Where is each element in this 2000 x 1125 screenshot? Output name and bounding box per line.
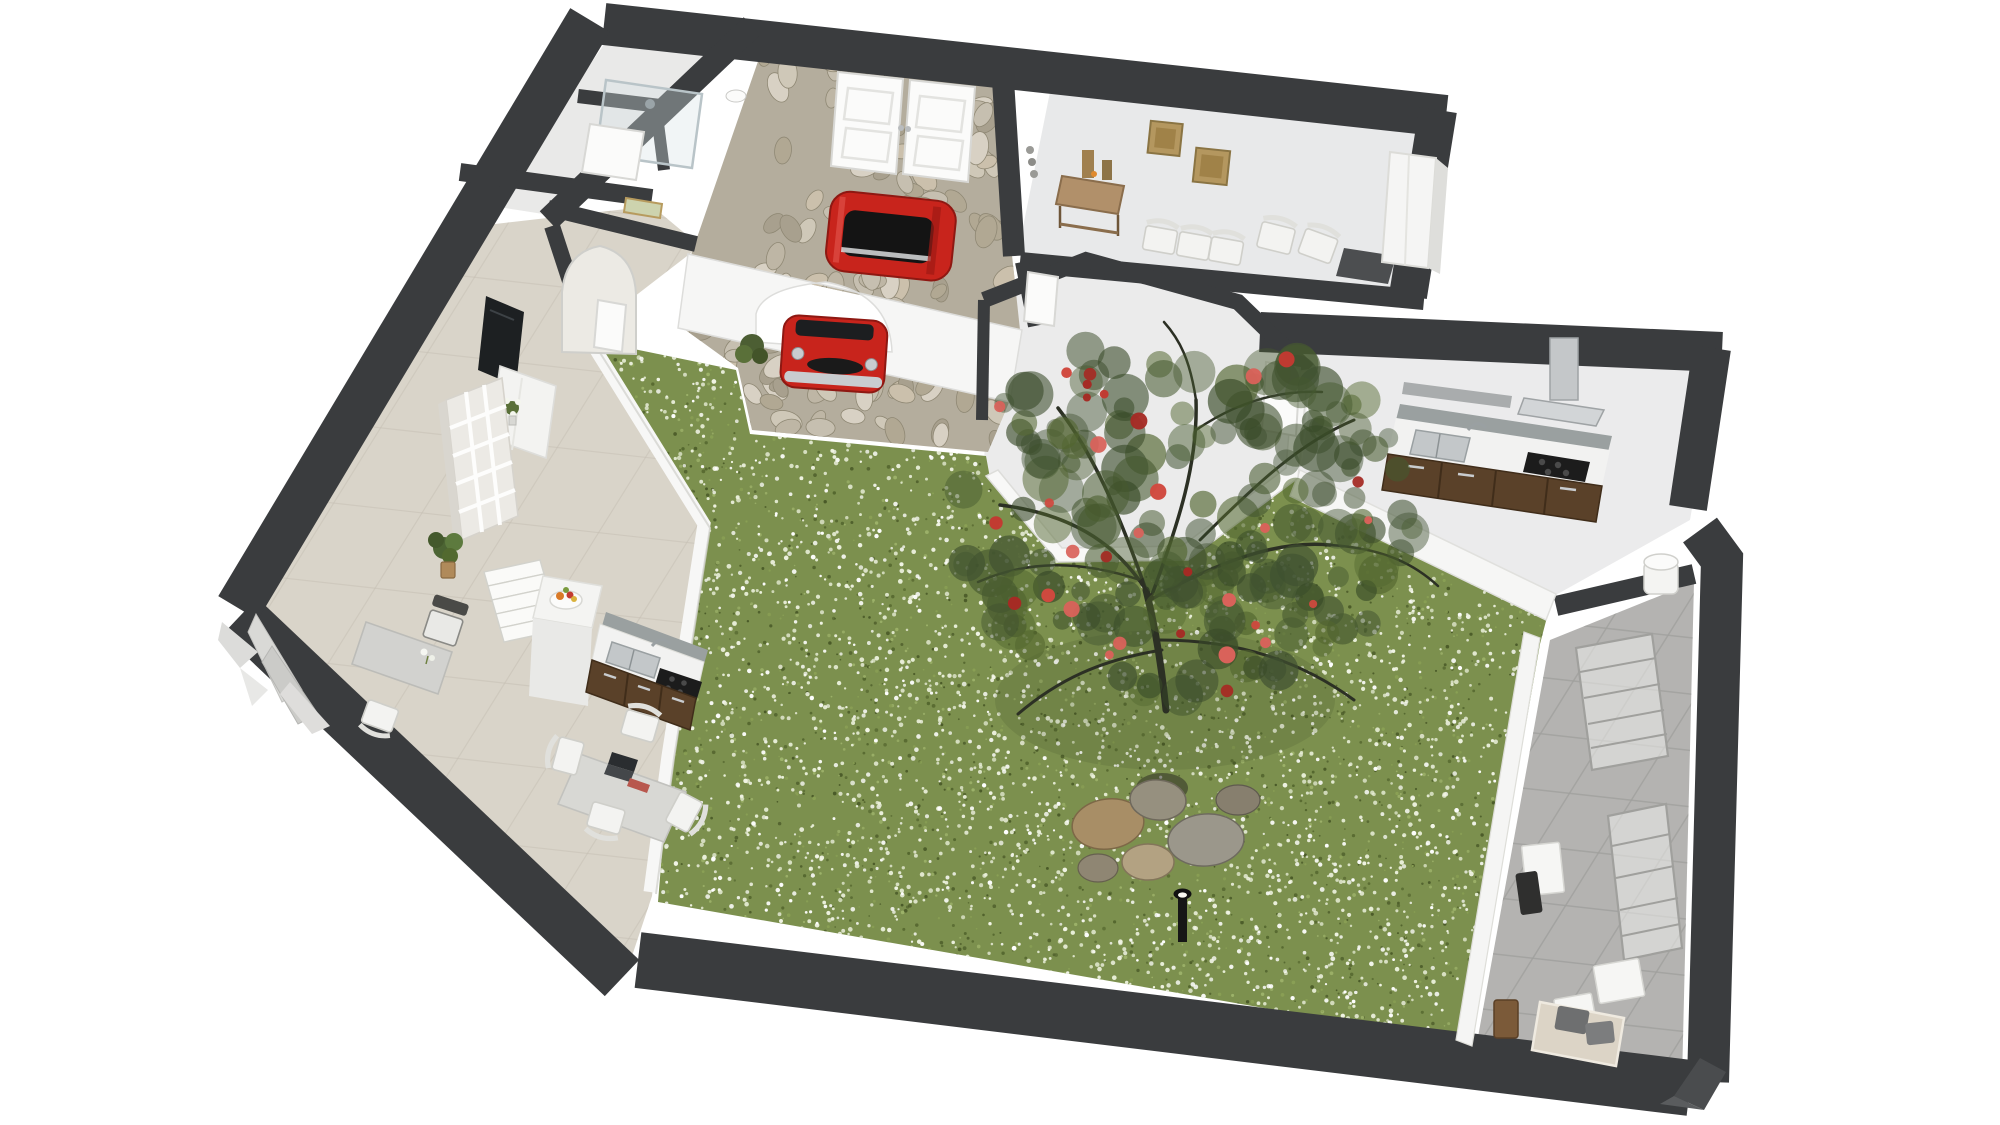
candle-flame [1091, 171, 1097, 177]
white-wardrobe [1382, 152, 1448, 274]
garage-car-top-view [824, 190, 958, 283]
storage-box [1593, 958, 1645, 1003]
closet-door [582, 124, 644, 180]
arch-car-front-view [780, 314, 889, 393]
wash-basin [726, 90, 746, 102]
console-decor-board [1102, 160, 1112, 180]
wooden-chair [1494, 1000, 1518, 1038]
shower-head [645, 99, 655, 109]
door-handle-right [905, 126, 911, 132]
garage-side-door [1024, 272, 1058, 326]
wire-rack-upper [1576, 634, 1668, 770]
hallway-arch [562, 246, 636, 354]
floorplan-render [0, 0, 2000, 1125]
garage-double-doors [831, 72, 975, 182]
water-heater [1644, 554, 1678, 594]
door-handle-left [898, 125, 904, 131]
